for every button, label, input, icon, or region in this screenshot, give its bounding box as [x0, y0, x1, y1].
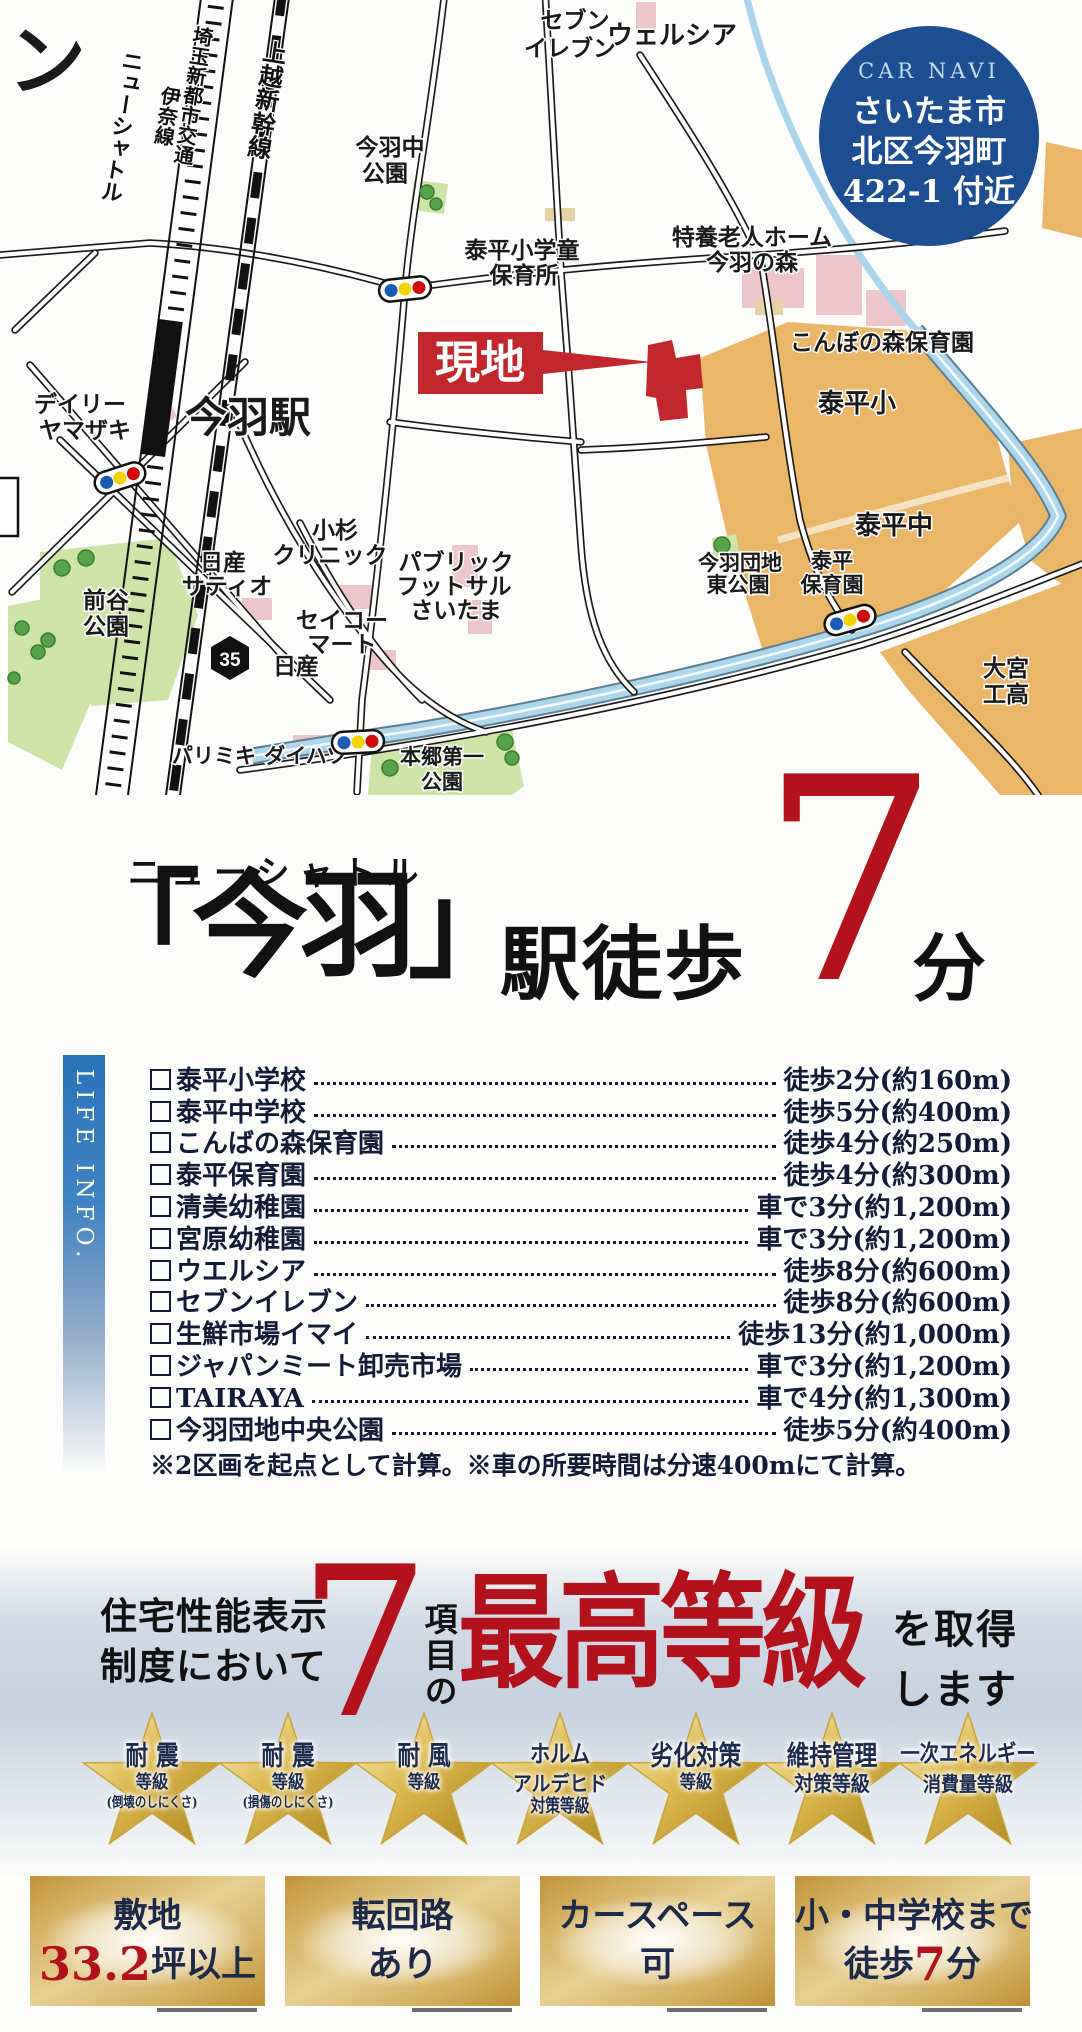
svg-text:さいたま市: さいたま市: [852, 94, 1006, 130]
list-item: セブンイレブン徒歩8分(約600m): [150, 1285, 1012, 1317]
svg-text:工高: 工高: [983, 681, 1029, 707]
svg-text:公園: 公園: [83, 613, 129, 639]
station-label: 今羽駅: [185, 394, 311, 441]
svg-text:本郷第一: 本郷第一: [400, 745, 484, 769]
grade-middle-text: 項目の: [414, 1602, 462, 1710]
list-item: ウエルシア徒歩8分(約600m): [150, 1253, 1012, 1285]
car-navi-title: CAR NAVI: [858, 59, 1000, 83]
badge-car-space: カースペース 可: [540, 1876, 775, 2006]
checkbox-icon: [150, 1069, 171, 1090]
svg-text:クリニック: クリニック: [273, 542, 388, 568]
corner-cutoff-text: ン: [8, 17, 86, 105]
badge-underline: [412, 2008, 512, 2012]
svg-text:泰平小: 泰平小: [818, 388, 896, 418]
genchi-label: 現地: [435, 337, 525, 388]
life-info-sidebar-label: LIFE INFO.: [71, 1069, 97, 1263]
area-map: 35 現地 ン ニューシャトル 伊奈線 埼玉新都市交通 上越新幹線 セ: [0, 0, 1082, 795]
svg-text:デイリー: デイリー: [34, 391, 126, 417]
checkbox-icon: [150, 1101, 171, 1122]
svg-text:公園: 公園: [421, 771, 463, 794]
flyer-page: 35 現地 ン ニューシャトル 伊奈線 埼玉新都市交通 上越新幹線 セ: [0, 0, 1082, 2032]
list-item: 清美幼稚園車で3分(約1,200m): [150, 1189, 1012, 1221]
dot-leader: [392, 1145, 776, 1148]
svg-text:今羽の森: 今羽の森: [706, 249, 799, 275]
svg-text:パリミキ: パリミキ: [172, 745, 256, 768]
map-canvas: 35 現地 ン ニューシャトル 伊奈線 埼玉新都市交通 上越新幹線 セ: [0, 0, 1082, 795]
cutoff-box: [0, 478, 18, 536]
headline-walk-label: 駅徒歩: [500, 924, 746, 1004]
grade-intro-text: 住宅性能表示 制度において: [100, 1592, 328, 1692]
car-navi-badge: CAR NAVI さいたま市 北区今羽町 422-1 付近: [819, 26, 1039, 246]
list-item: こんばの森保育園徒歩4分(約250m): [150, 1126, 1012, 1158]
grade-star: 一次エネルギー消費量等級: [883, 1702, 1053, 1872]
life-info-list: 泰平小学校徒歩2分(約160m) 泰平中学校徒歩5分(約400m) こんばの森保…: [150, 1062, 1012, 1444]
dot-leader: [366, 1304, 776, 1307]
svg-text:保育園: 保育園: [800, 573, 864, 597]
svg-text:422-1 付近: 422-1 付近: [843, 174, 1015, 210]
dot-leader: [314, 1273, 776, 1276]
dot-leader: [314, 1209, 748, 1212]
svg-text:日産: 日産: [200, 549, 246, 575]
checkbox-icon: [150, 1291, 171, 1312]
life-info-footnote: ※2区画を起点として計算。※車の所要時間は分速400mにて計算。: [150, 1446, 920, 1482]
list-item: 泰平小学校徒歩2分(約160m): [150, 1062, 1012, 1094]
checkbox-icon: [150, 1323, 171, 1344]
svg-text:サティオ: サティオ: [182, 573, 273, 599]
svg-text:大宮: 大宮: [983, 655, 1029, 681]
checkbox-icon: [150, 1419, 171, 1440]
dot-leader: [314, 1241, 748, 1244]
list-item: 泰平中学校徒歩5分(約400m): [150, 1094, 1012, 1126]
dot-leader: [314, 1177, 776, 1180]
svg-text:パブリック: パブリック: [399, 549, 514, 575]
list-item: 泰平保育園徒歩4分(約300m): [150, 1157, 1012, 1189]
list-item: 生鮮市場イマイ徒歩13分(約1,000m): [150, 1316, 1012, 1348]
svg-text:イレブン: イレブン: [524, 35, 616, 61]
svg-text:さいたま: さいたま: [410, 597, 501, 623]
svg-text:今羽中: 今羽中: [356, 134, 425, 160]
svg-text:セイコー: セイコー: [296, 607, 388, 633]
checkbox-icon: [150, 1355, 171, 1376]
svg-text:東公園: 東公園: [707, 574, 770, 597]
list-item: 今羽団地中央公園徒歩5分(約400m): [150, 1412, 1012, 1444]
dot-leader: [314, 1114, 776, 1117]
dot-leader: [314, 1082, 776, 1085]
svg-text:保育所: 保育所: [489, 262, 559, 288]
dot-leader: [470, 1368, 748, 1371]
badge-lot-size: 敷地 33.2坪以上: [30, 1876, 265, 2006]
list-item: TAIRAYA車で4分(約1,300m): [150, 1380, 1012, 1412]
badge-underline: [922, 2008, 1022, 2012]
dot-leader: [392, 1432, 776, 1435]
svg-text:35: 35: [219, 650, 241, 671]
checkbox-icon: [150, 1164, 171, 1185]
dot-leader: [312, 1400, 749, 1403]
badge-school-distance: 小・中学校まで 徒歩7分: [795, 1876, 1030, 2006]
svg-text:小杉: 小杉: [312, 517, 358, 543]
life-info-sidebar: LIFE INFO.: [63, 1055, 105, 1475]
svg-text:フットサル: フットサル: [397, 573, 512, 599]
list-item: 宮原幼稚園車で3分(約1,200m): [150, 1221, 1012, 1253]
svg-text:今羽団地: 今羽団地: [698, 551, 782, 575]
svg-text:特養老人ホーム: 特養老人ホーム: [672, 224, 832, 250]
svg-text:公園: 公園: [362, 160, 408, 186]
checkbox-icon: [150, 1260, 171, 1281]
checkbox-icon: [150, 1196, 171, 1217]
badge-underline: [667, 2008, 767, 2012]
svg-text:泰平: 泰平: [810, 550, 853, 573]
checkbox-icon: [150, 1132, 171, 1153]
badge-underline: [157, 2008, 257, 2012]
svg-text:前谷: 前谷: [83, 587, 130, 613]
svg-text:泰平小学童: 泰平小学童: [464, 237, 580, 263]
headline-station-name: 「今羽」: [84, 868, 516, 984]
svg-text:泰平中: 泰平中: [855, 510, 933, 540]
headline-minutes-unit: 分: [912, 932, 986, 1006]
svg-text:ヤマザキ: ヤマザキ: [39, 417, 131, 443]
grade-highest-text: 最高等級: [458, 1572, 863, 1696]
list-item: ジャパンミート卸売市場車で3分(約1,200m): [150, 1348, 1012, 1380]
badge-turnaround: 転回路 あり: [285, 1876, 520, 2006]
svg-text:日産: 日産: [273, 653, 319, 679]
dot-leader: [366, 1336, 730, 1339]
checkbox-icon: [150, 1387, 171, 1408]
svg-text:セブン: セブン: [541, 7, 610, 33]
svg-text:北区今羽町: 北区今羽町: [852, 134, 1007, 170]
checkbox-icon: [150, 1228, 171, 1249]
svg-text:こんぼの森保育園: こんぼの森保育園: [790, 329, 974, 355]
svg-text:ウェルシア: ウェルシア: [607, 20, 737, 50]
